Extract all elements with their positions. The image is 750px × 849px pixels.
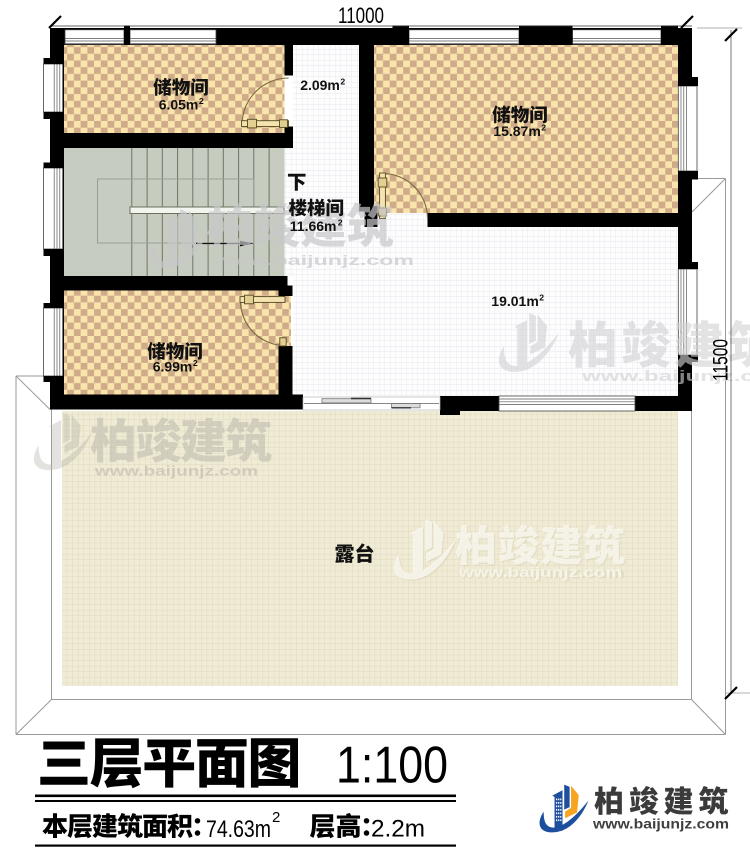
- svg-text:2.2m: 2.2m: [371, 816, 425, 843]
- svg-text:2: 2: [199, 96, 204, 106]
- svg-text:2: 2: [193, 358, 198, 368]
- svg-text:74.63m: 74.63m: [206, 816, 271, 843]
- svg-text:6.99m: 6.99m: [153, 359, 193, 375]
- svg-text:11500: 11500: [710, 339, 733, 381]
- svg-text:2: 2: [338, 218, 343, 228]
- svg-text:1:100: 1:100: [336, 737, 448, 795]
- svg-text:2.09m: 2.09m: [300, 77, 340, 93]
- svg-text:11.66m: 11.66m: [290, 218, 337, 234]
- svg-text:2: 2: [539, 293, 544, 303]
- svg-text:2: 2: [272, 809, 280, 826]
- svg-text:www.baijunjz.com: www.baijunjz.com: [592, 817, 729, 832]
- svg-text:2: 2: [541, 123, 546, 133]
- svg-text:www.baijunjz.com: www.baijunjz.com: [212, 253, 414, 268]
- svg-text:11000: 11000: [338, 3, 384, 28]
- svg-text:2: 2: [340, 77, 345, 87]
- svg-text:15.87m: 15.87m: [493, 123, 540, 139]
- svg-text:www.baijunjz.com: www.baijunjz.com: [94, 463, 258, 479]
- svg-text:6.05m: 6.05m: [159, 97, 199, 113]
- svg-text:www.baijunjz.com: www.baijunjz.com: [458, 565, 622, 580]
- svg-text:19.01m: 19.01m: [491, 293, 538, 309]
